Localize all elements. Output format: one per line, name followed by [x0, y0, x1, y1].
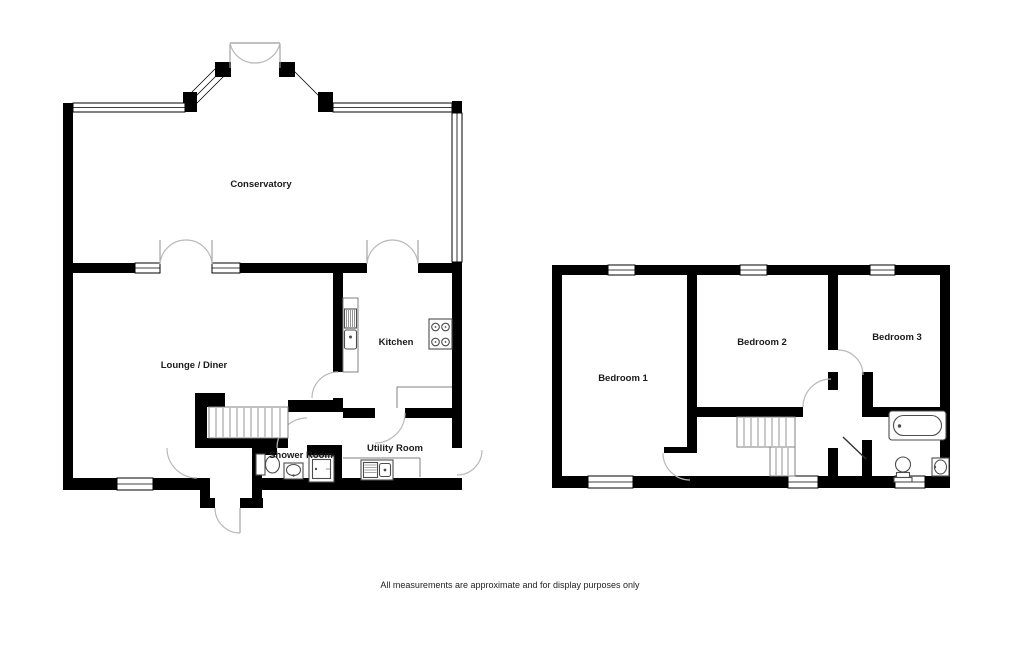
label-shower-room: Shower Room: [269, 450, 333, 461]
basin-icon: [932, 458, 949, 476]
label-conservatory: Conservatory: [230, 179, 292, 190]
utility-sink-icon: [343, 458, 420, 480]
kitchen-worktop: [397, 387, 452, 408]
label-bedroom-2: Bedroom 2: [737, 337, 787, 348]
kitchen-conservatory-doors: [367, 240, 418, 264]
bath-icon: [889, 411, 946, 440]
label-lounge-diner: Lounge / Diner: [161, 360, 228, 371]
window: [73, 103, 185, 112]
floorplan-canvas: Conservatory Lounge / Diner Kitchen Show…: [0, 0, 1020, 656]
window: [135, 263, 160, 273]
window: [333, 103, 452, 112]
ground-floor-walls: [63, 62, 462, 508]
utility-door: [375, 413, 405, 443]
staircase-icon: [737, 417, 795, 476]
label-utility-room: Utility Room: [367, 443, 423, 454]
window: [788, 476, 818, 488]
hob-icon: [429, 319, 452, 349]
bedroom-3-door: [838, 350, 863, 375]
utility-external-door: [457, 450, 482, 475]
label-kitchen: Kitchen: [379, 337, 414, 348]
window: [588, 476, 633, 488]
basin-icon: [284, 463, 303, 479]
hall-lounge-door: [167, 448, 197, 478]
staircase-icon: [209, 407, 288, 438]
conservatory-entrance-doors: [230, 43, 280, 68]
window: [452, 113, 462, 262]
floorplan-page: Conservatory Lounge / Diner Kitchen Show…: [0, 0, 1020, 656]
window: [608, 265, 635, 275]
kitchen-door: [312, 372, 338, 398]
disclaimer-text: All measurements are approximate and for…: [380, 580, 640, 590]
label-bedroom-1: Bedroom 1: [598, 373, 648, 384]
window: [740, 265, 767, 275]
lounge-conservatory-doors: [160, 240, 212, 264]
bedroom-1-door: [663, 453, 690, 480]
conservatory-bay-window: [187, 43, 328, 105]
bedroom-2-door: [803, 379, 831, 407]
front-entrance-door: [215, 508, 240, 533]
toilet-icon: [894, 457, 912, 482]
label-bedroom-3: Bedroom 3: [872, 332, 922, 343]
window: [870, 265, 895, 275]
window: [212, 263, 240, 273]
kitchen-sink-icon: [343, 298, 358, 372]
window: [117, 478, 153, 490]
